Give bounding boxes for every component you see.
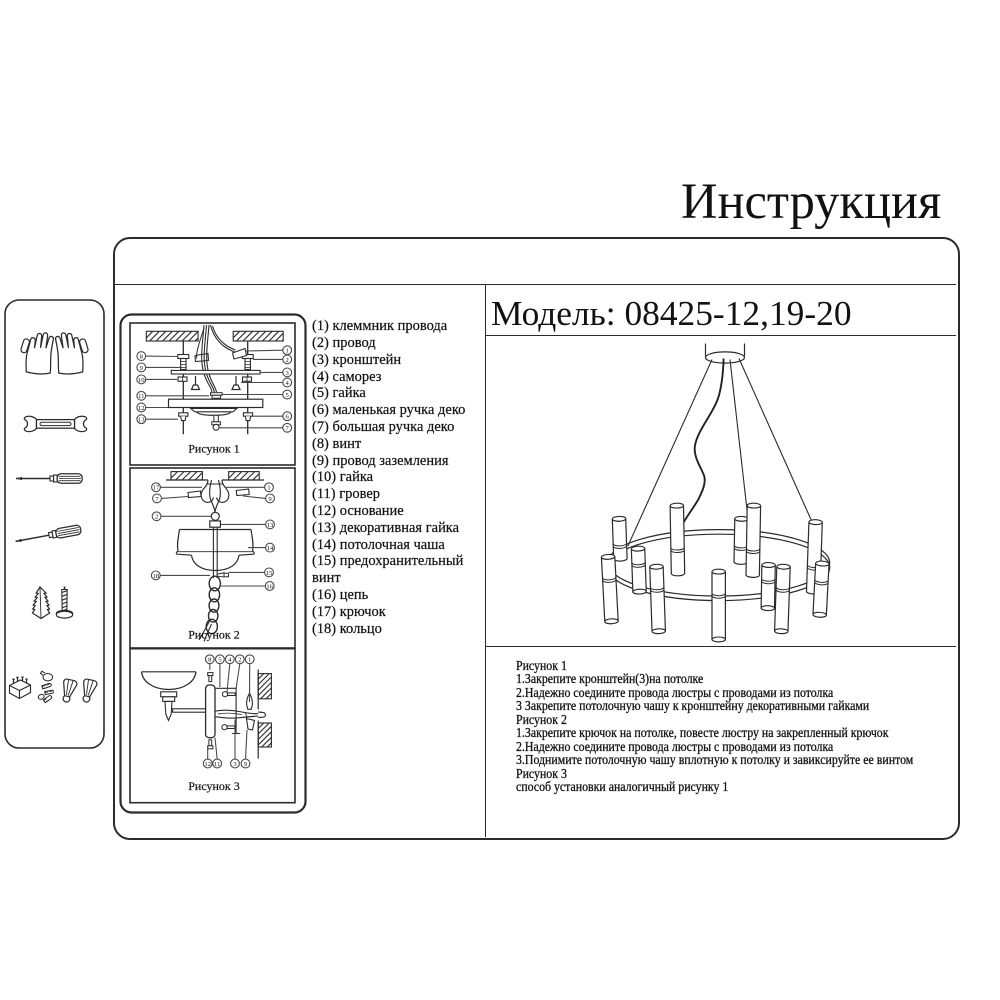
svg-text:1: 1: [267, 485, 270, 492]
svg-text:1: 1: [248, 657, 251, 664]
svg-text:11: 11: [214, 761, 220, 768]
svg-text:13: 13: [267, 522, 274, 529]
svg-text:12: 12: [138, 405, 145, 412]
svg-text:2: 2: [286, 357, 289, 364]
svg-text:Рисунок 2: Рисунок 2: [188, 627, 240, 641]
svg-text:1: 1: [286, 348, 289, 355]
svg-text:13: 13: [138, 417, 145, 424]
svg-text:17: 17: [153, 485, 160, 492]
svg-text:18: 18: [153, 573, 160, 580]
svg-text:15: 15: [266, 570, 273, 577]
svg-text:2: 2: [238, 657, 241, 664]
svg-text:2: 2: [155, 514, 158, 521]
svg-text:16: 16: [266, 583, 273, 590]
svg-text:Рисунок 3: Рисунок 3: [188, 779, 240, 793]
svg-text:12: 12: [204, 761, 211, 768]
svg-text:11: 11: [138, 393, 144, 400]
svg-text:Рисунок 1: Рисунок 1: [188, 441, 240, 455]
svg-text:14: 14: [267, 545, 274, 552]
svg-text:10: 10: [138, 377, 145, 384]
